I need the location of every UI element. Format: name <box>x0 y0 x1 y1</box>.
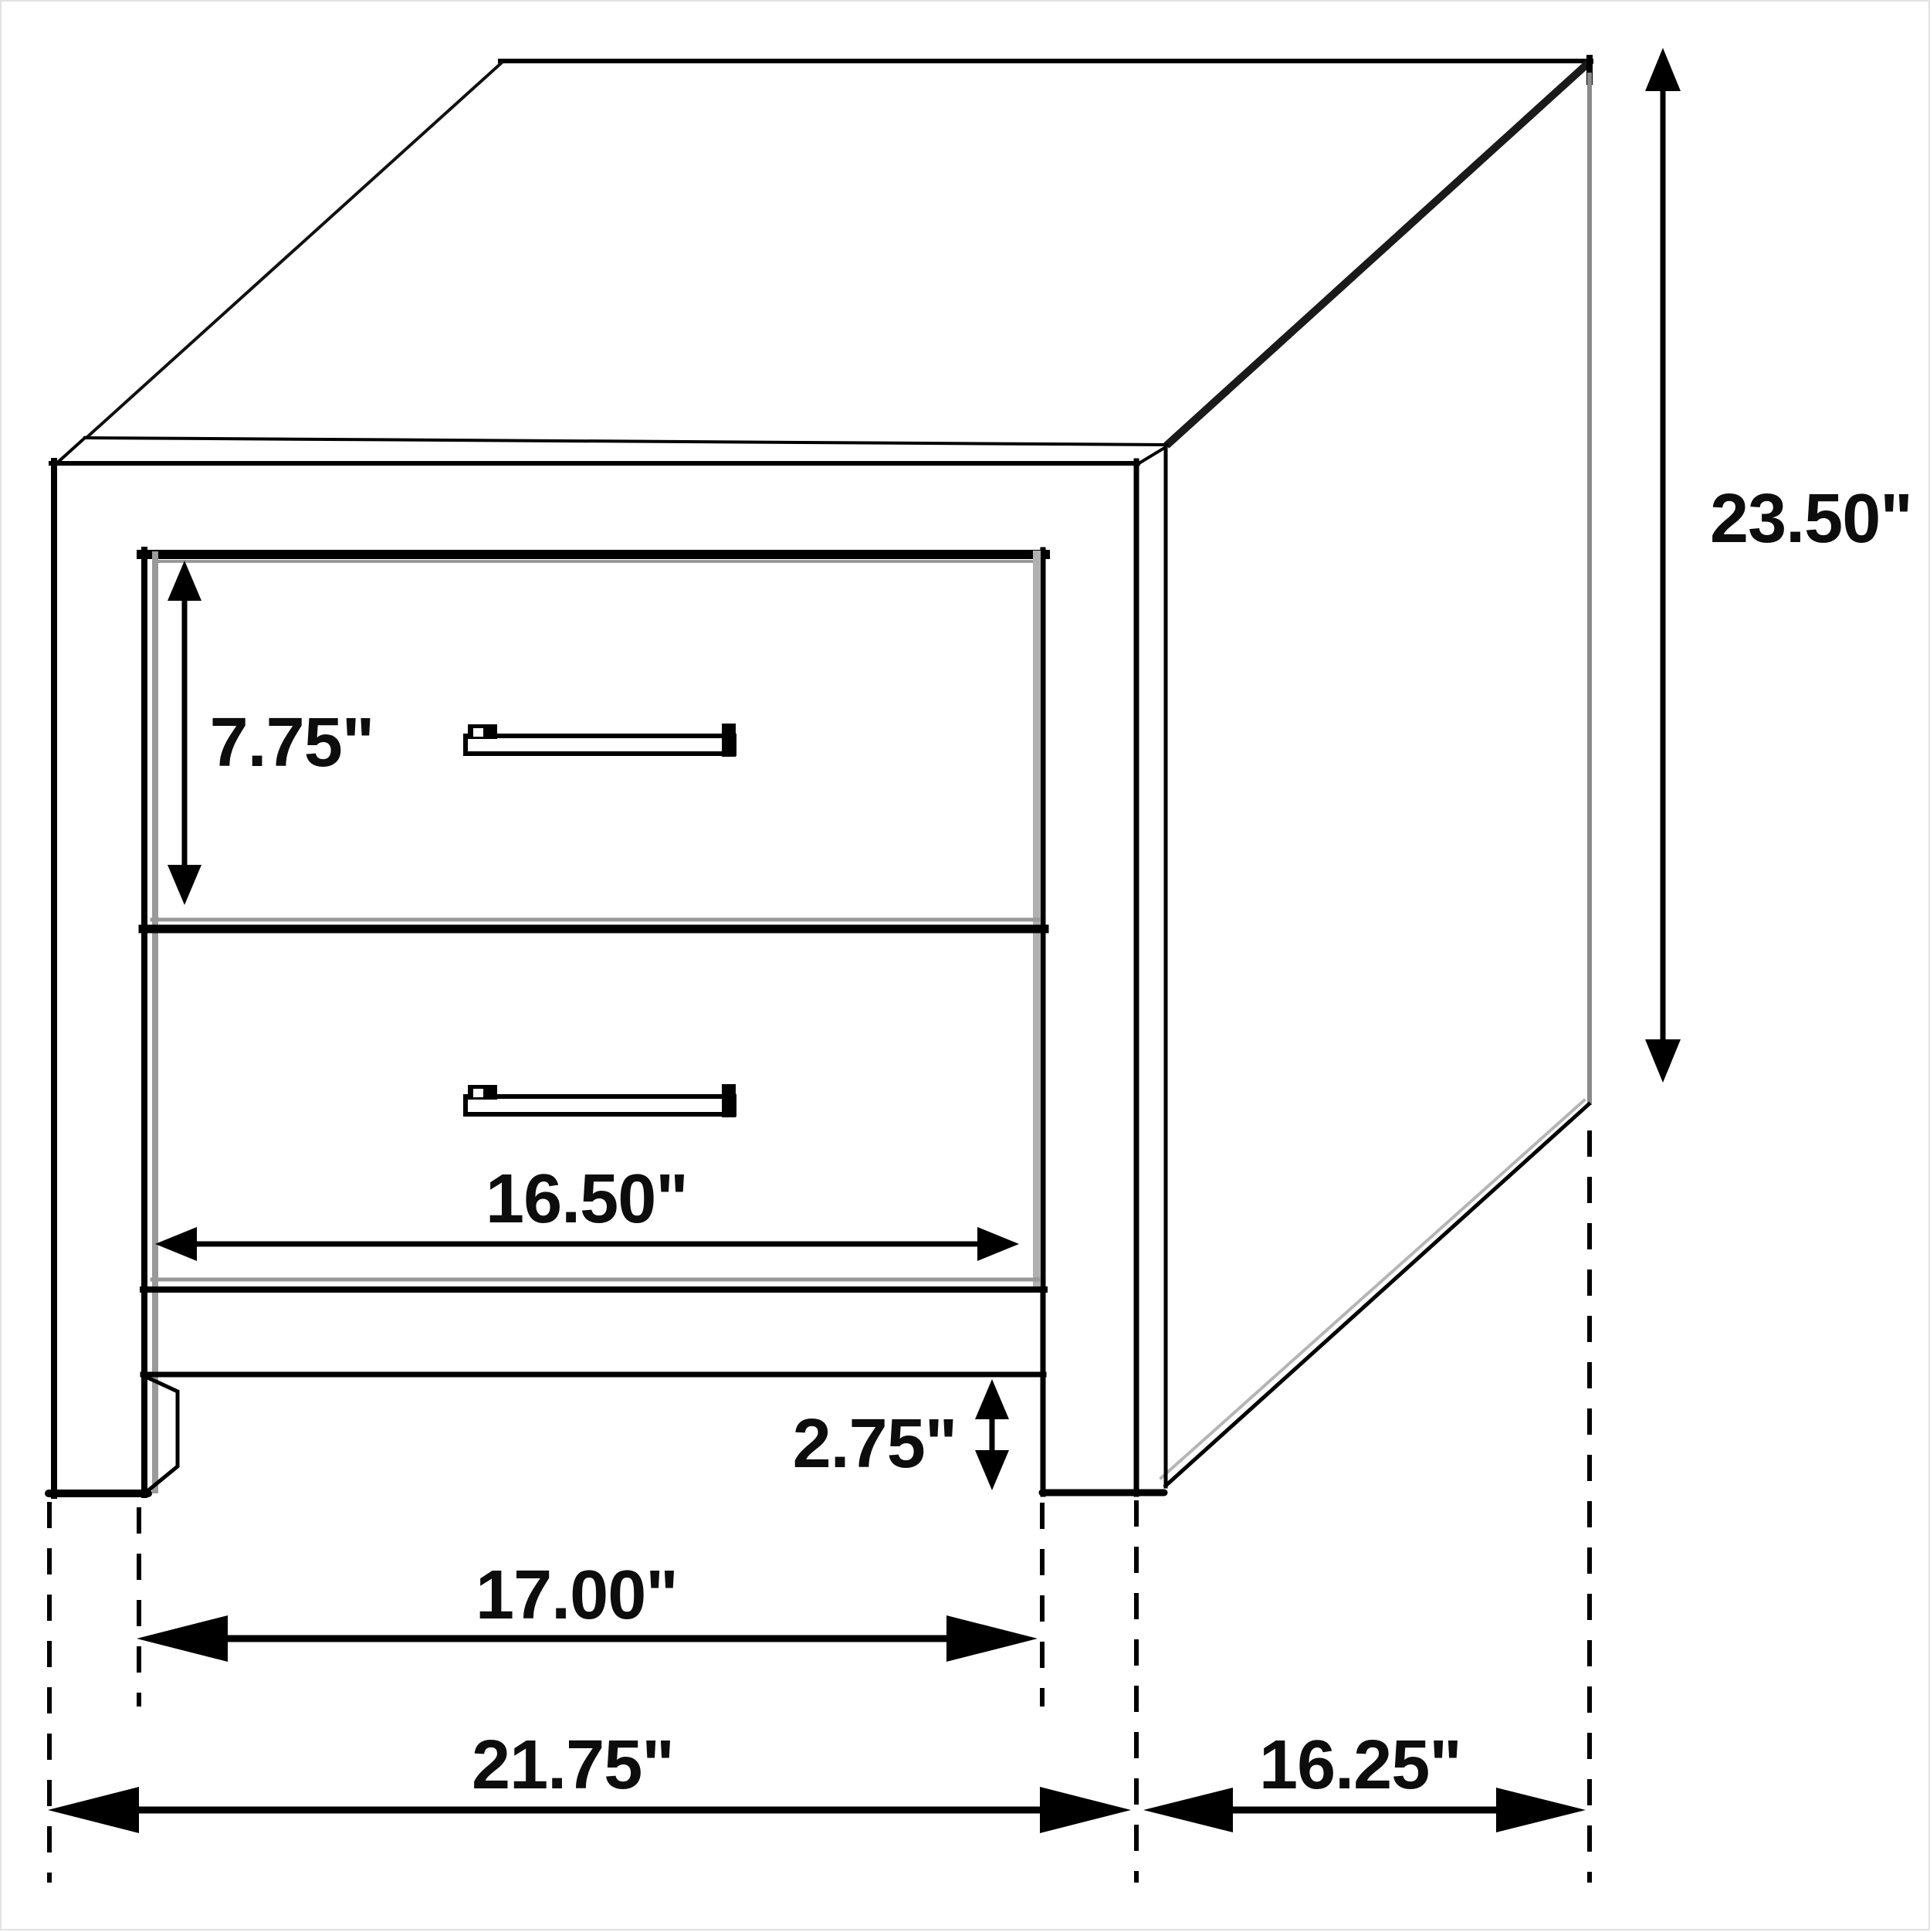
dimension-overall-height: 23.50" <box>1645 48 1912 1083</box>
dimension-label-depth: 16.25" <box>1259 1727 1461 1804</box>
top-left-edge <box>88 63 502 436</box>
dimension-overall-width-arrow-left <box>48 1787 139 1833</box>
side-bottom-edge <box>1166 1104 1589 1486</box>
dimension-label-drawer-height: 7.75" <box>210 704 374 781</box>
dimension-label-overall-width: 21.75" <box>472 1727 674 1804</box>
dimension-drawer-width-arrow-right <box>977 1227 1019 1261</box>
dimension-label-foot-clearance: 2.75" <box>793 1405 957 1483</box>
dimension-drawer-width-arrow-left <box>155 1227 197 1261</box>
dimension-annotations: 7.75" 23.50" 16.50" 2.75" 17 <box>48 48 1912 1883</box>
dimension-depth-arrow-left <box>1143 1788 1233 1832</box>
side-panel <box>1161 58 1590 1486</box>
dimension-drawer-height: 7.75" <box>168 561 374 905</box>
dimension-inner-width-arrow-left <box>137 1615 228 1662</box>
nightstand-dimension-diagram: 7.75" 23.50" 16.50" 2.75" 17 <box>2 2 1930 1932</box>
dimension-overall-height-arrow-up <box>1645 48 1681 91</box>
dimension-foot-clearance-arrow-down <box>975 1450 1009 1490</box>
dimension-inner-width: 17.00" <box>137 1557 1038 1662</box>
drawer-2-handle-bar <box>466 1096 734 1114</box>
side-bottom-edge-shadow <box>1161 1100 1584 1478</box>
top-right-chamfer <box>1136 447 1166 465</box>
front-frame <box>49 461 1164 1496</box>
dimension-overall-width-arrow-right <box>1040 1787 1131 1833</box>
dimension-depth-arrow-right <box>1496 1788 1586 1832</box>
dimension-overall-width: 21.75" <box>48 1727 1131 1833</box>
dimension-inner-width-arrow-right <box>946 1615 1038 1662</box>
dimension-label-drawer-width: 16.50" <box>486 1161 688 1238</box>
top-panel <box>54 61 1591 466</box>
dimension-drawer-height-arrow-down <box>168 865 201 905</box>
top-front-edge <box>85 438 1167 445</box>
dimension-foot-clearance: 2.75" <box>793 1379 1009 1490</box>
screenshot-canvas: 7.75" 23.50" 16.50" 2.75" 17 <box>0 0 1930 1930</box>
dimension-drawer-height-arrow-up <box>168 561 201 601</box>
drawer-1-handle <box>466 724 736 757</box>
drawer-1-handle-right-cap <box>722 724 736 757</box>
drawer-2-handle <box>466 1084 736 1117</box>
dimension-label-overall-height: 23.50" <box>1710 480 1912 558</box>
drawer-2-handle-right-cap <box>722 1084 736 1117</box>
drawer-1-handle-left-notch <box>473 728 483 737</box>
dimension-foot-clearance-arrow-up <box>975 1379 1009 1419</box>
dimension-depth: 16.25" <box>1143 1727 1586 1832</box>
left-leg-inner-notch <box>146 1377 178 1491</box>
drawer-2-handle-left-notch <box>473 1089 483 1097</box>
top-right-edge-hatched <box>1167 63 1588 445</box>
drawer-1-handle-bar <box>466 736 734 754</box>
dimension-label-inner-width: 17.00" <box>476 1557 678 1634</box>
dimension-drawer-width: 16.50" <box>155 1161 1019 1261</box>
dimension-overall-height-arrow-down <box>1645 1039 1681 1083</box>
